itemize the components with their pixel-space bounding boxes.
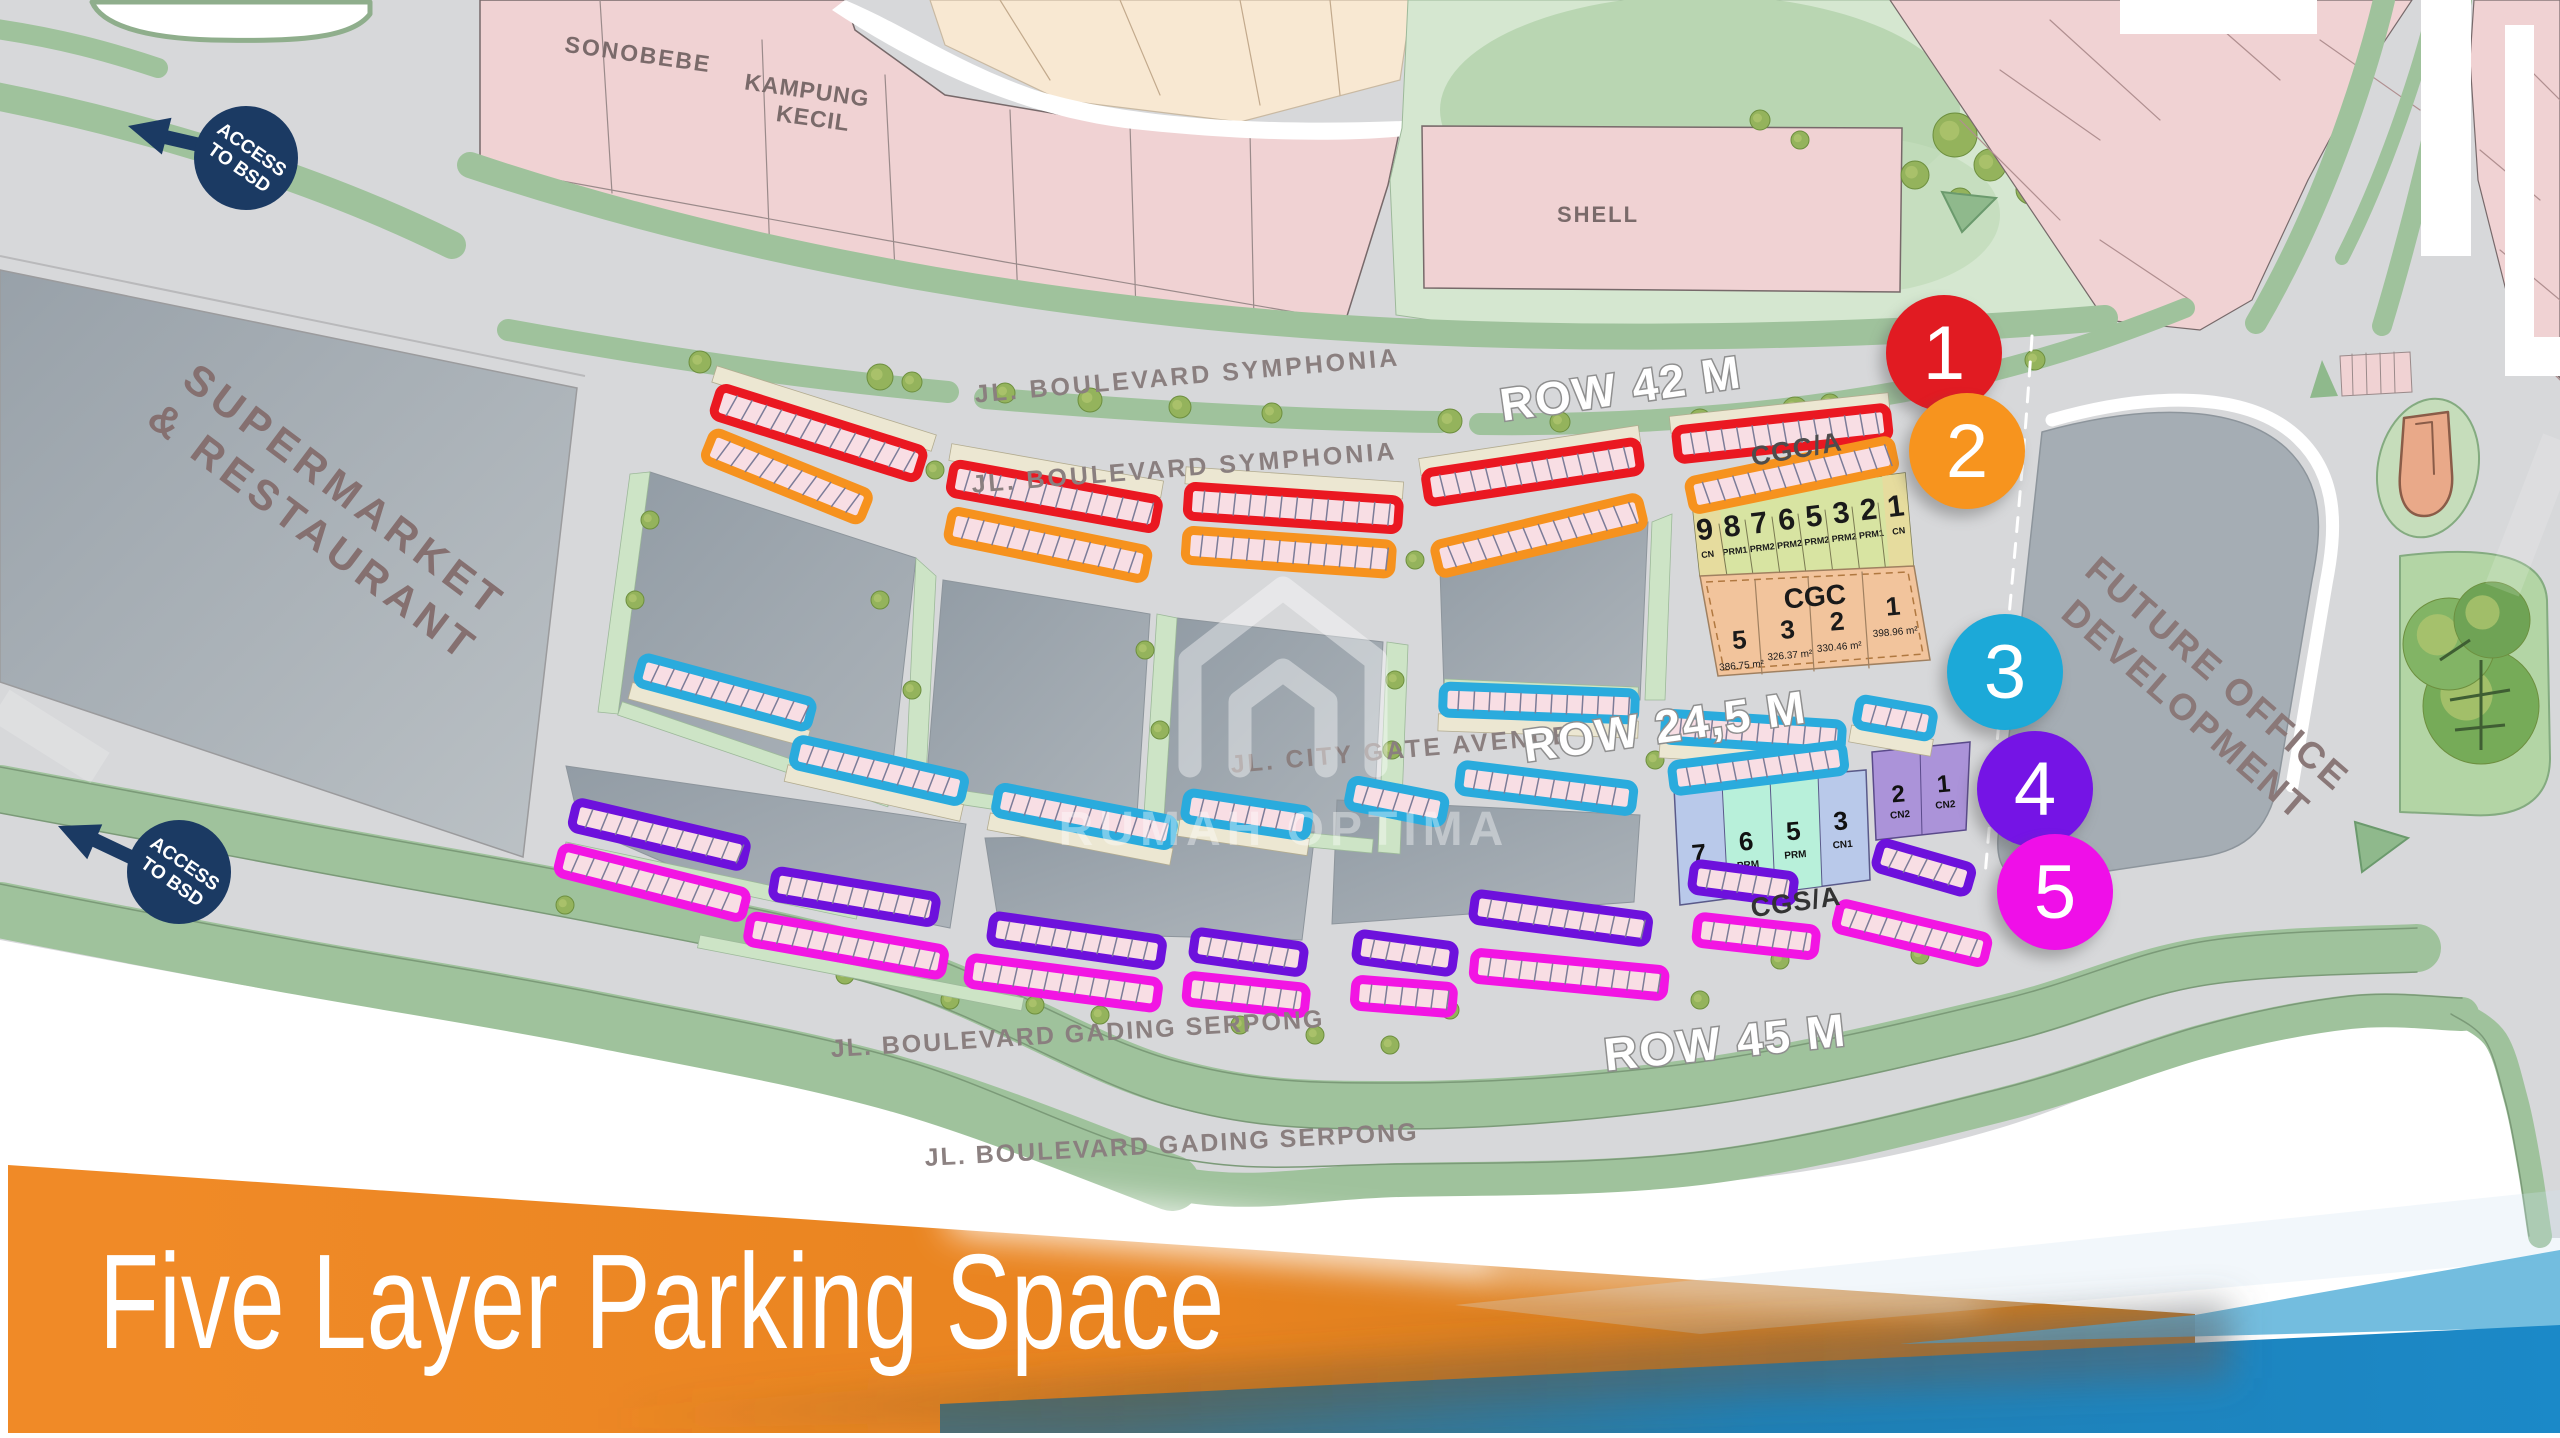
svg-text:2: 2 <box>1890 780 1906 808</box>
svg-text:6: 6 <box>1737 826 1754 857</box>
svg-text:3: 3 <box>1779 614 1796 645</box>
svg-text:CN2: CN2 <box>1935 799 1956 812</box>
svg-text:CN2: CN2 <box>1890 809 1911 822</box>
svg-text:SHELL: SHELL <box>1557 202 1639 227</box>
svg-text:1: 1 <box>1923 311 1965 396</box>
svg-text:1: 1 <box>1936 770 1952 798</box>
svg-text:RUMAH OPTIMA: RUMAH OPTIMA <box>1059 803 1510 856</box>
svg-text:CN: CN <box>1701 549 1715 561</box>
svg-text:PRM: PRM <box>1784 849 1807 862</box>
svg-text:5: 5 <box>2034 850 2076 935</box>
svg-text:Five Layer Parking Space: Five Layer Parking Space <box>99 1227 1224 1378</box>
svg-text:CN: CN <box>1892 525 1906 537</box>
svg-text:5: 5 <box>1731 624 1748 655</box>
svg-text:2: 2 <box>1829 606 1846 637</box>
svg-text:1: 1 <box>1884 591 1901 622</box>
svg-text:2: 2 <box>1946 409 1988 494</box>
svg-text:5: 5 <box>1785 815 1802 846</box>
svg-text:4: 4 <box>2014 747 2056 832</box>
svg-text:3: 3 <box>1832 805 1849 836</box>
svg-text:CN1: CN1 <box>1832 839 1853 852</box>
svg-text:3: 3 <box>1984 630 2026 715</box>
